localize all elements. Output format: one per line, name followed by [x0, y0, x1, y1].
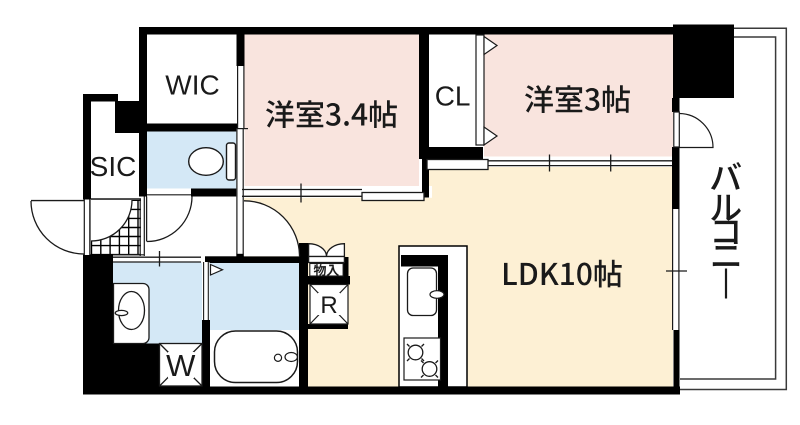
svg-text:W: W — [166, 348, 196, 383]
svg-text:SIC: SIC — [90, 151, 137, 182]
svg-text:R: R — [320, 292, 337, 319]
svg-text:WIC: WIC — [165, 70, 219, 101]
svg-text:CL: CL — [435, 81, 471, 112]
